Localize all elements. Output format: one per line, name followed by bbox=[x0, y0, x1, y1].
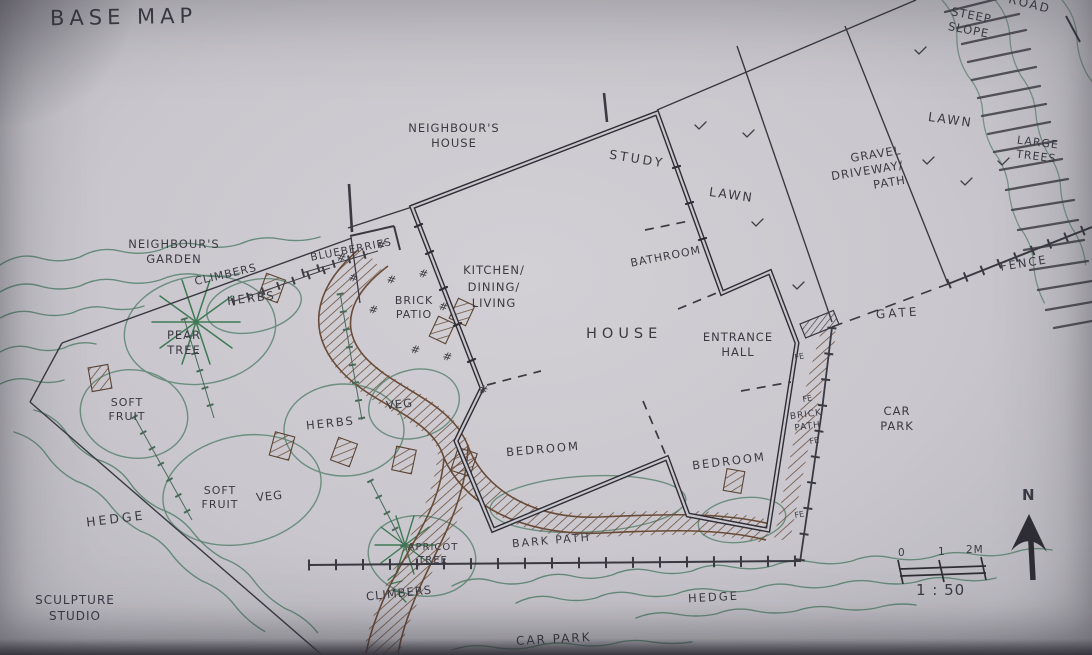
bottom-shadow bbox=[0, 639, 1092, 655]
scale-ratio: 1 : 50 bbox=[916, 581, 965, 601]
north-arrow bbox=[1011, 514, 1047, 580]
svg-text:#: # bbox=[477, 382, 489, 397]
corner-shadow bbox=[0, 0, 140, 130]
label-soft-fruit-lower: SOFT FRUIT bbox=[194, 484, 246, 513]
label-car-park-right: CAR PARK bbox=[874, 404, 920, 434]
north-label: N bbox=[1022, 486, 1036, 506]
label-neighbours-garden: NEIGHBOUR'S GARDEN bbox=[116, 237, 232, 267]
label-apricot-tree: APRICOT TREE bbox=[404, 541, 462, 567]
label-gate: GATE bbox=[876, 305, 920, 324]
scale-tick-1: 1 bbox=[938, 546, 946, 560]
scale-tick-0: 0 bbox=[898, 547, 906, 561]
label-entrance-hall: ENTRANCE HALL bbox=[700, 330, 776, 360]
label-pear-tree: PEAR TREE bbox=[158, 328, 210, 358]
svg-text:#: # bbox=[385, 272, 397, 287]
svg-text:#: # bbox=[367, 302, 379, 317]
svg-text:#: # bbox=[437, 299, 449, 314]
svg-text:FE: FE bbox=[802, 393, 813, 404]
label-neighbours-house: NEIGHBOUR'S HOUSE bbox=[398, 121, 510, 151]
svg-text:FE: FE bbox=[794, 351, 805, 362]
label-brick-patio: BRICK PATIO bbox=[389, 294, 439, 323]
svg-text:FE: FE bbox=[794, 509, 805, 520]
label-veg-lower: VEG bbox=[255, 488, 283, 506]
label-house: HOUSE bbox=[586, 325, 662, 344]
label-sculpture-studio: SCULPTURE STUDIO bbox=[28, 593, 122, 624]
svg-text:#: # bbox=[417, 266, 429, 281]
scale-bar bbox=[898, 557, 986, 584]
base-map-sheet: # # # # # # # # # # FE FE FE FE BASE MAP… bbox=[0, 0, 1092, 655]
svg-text:FE: FE bbox=[809, 435, 820, 446]
label-soft-fruit-upper: SOFT FRUIT bbox=[102, 396, 152, 425]
label-veg-upper: VEG bbox=[385, 396, 413, 414]
svg-text:#: # bbox=[409, 342, 421, 357]
label-kitchen-dining-living: KITCHEN/ DINING/ LIVING bbox=[452, 262, 536, 312]
scale-tick-2m: 2M bbox=[966, 544, 984, 558]
svg-text:#: # bbox=[441, 349, 453, 364]
label-hedge-lower: HEDGE bbox=[688, 589, 740, 607]
